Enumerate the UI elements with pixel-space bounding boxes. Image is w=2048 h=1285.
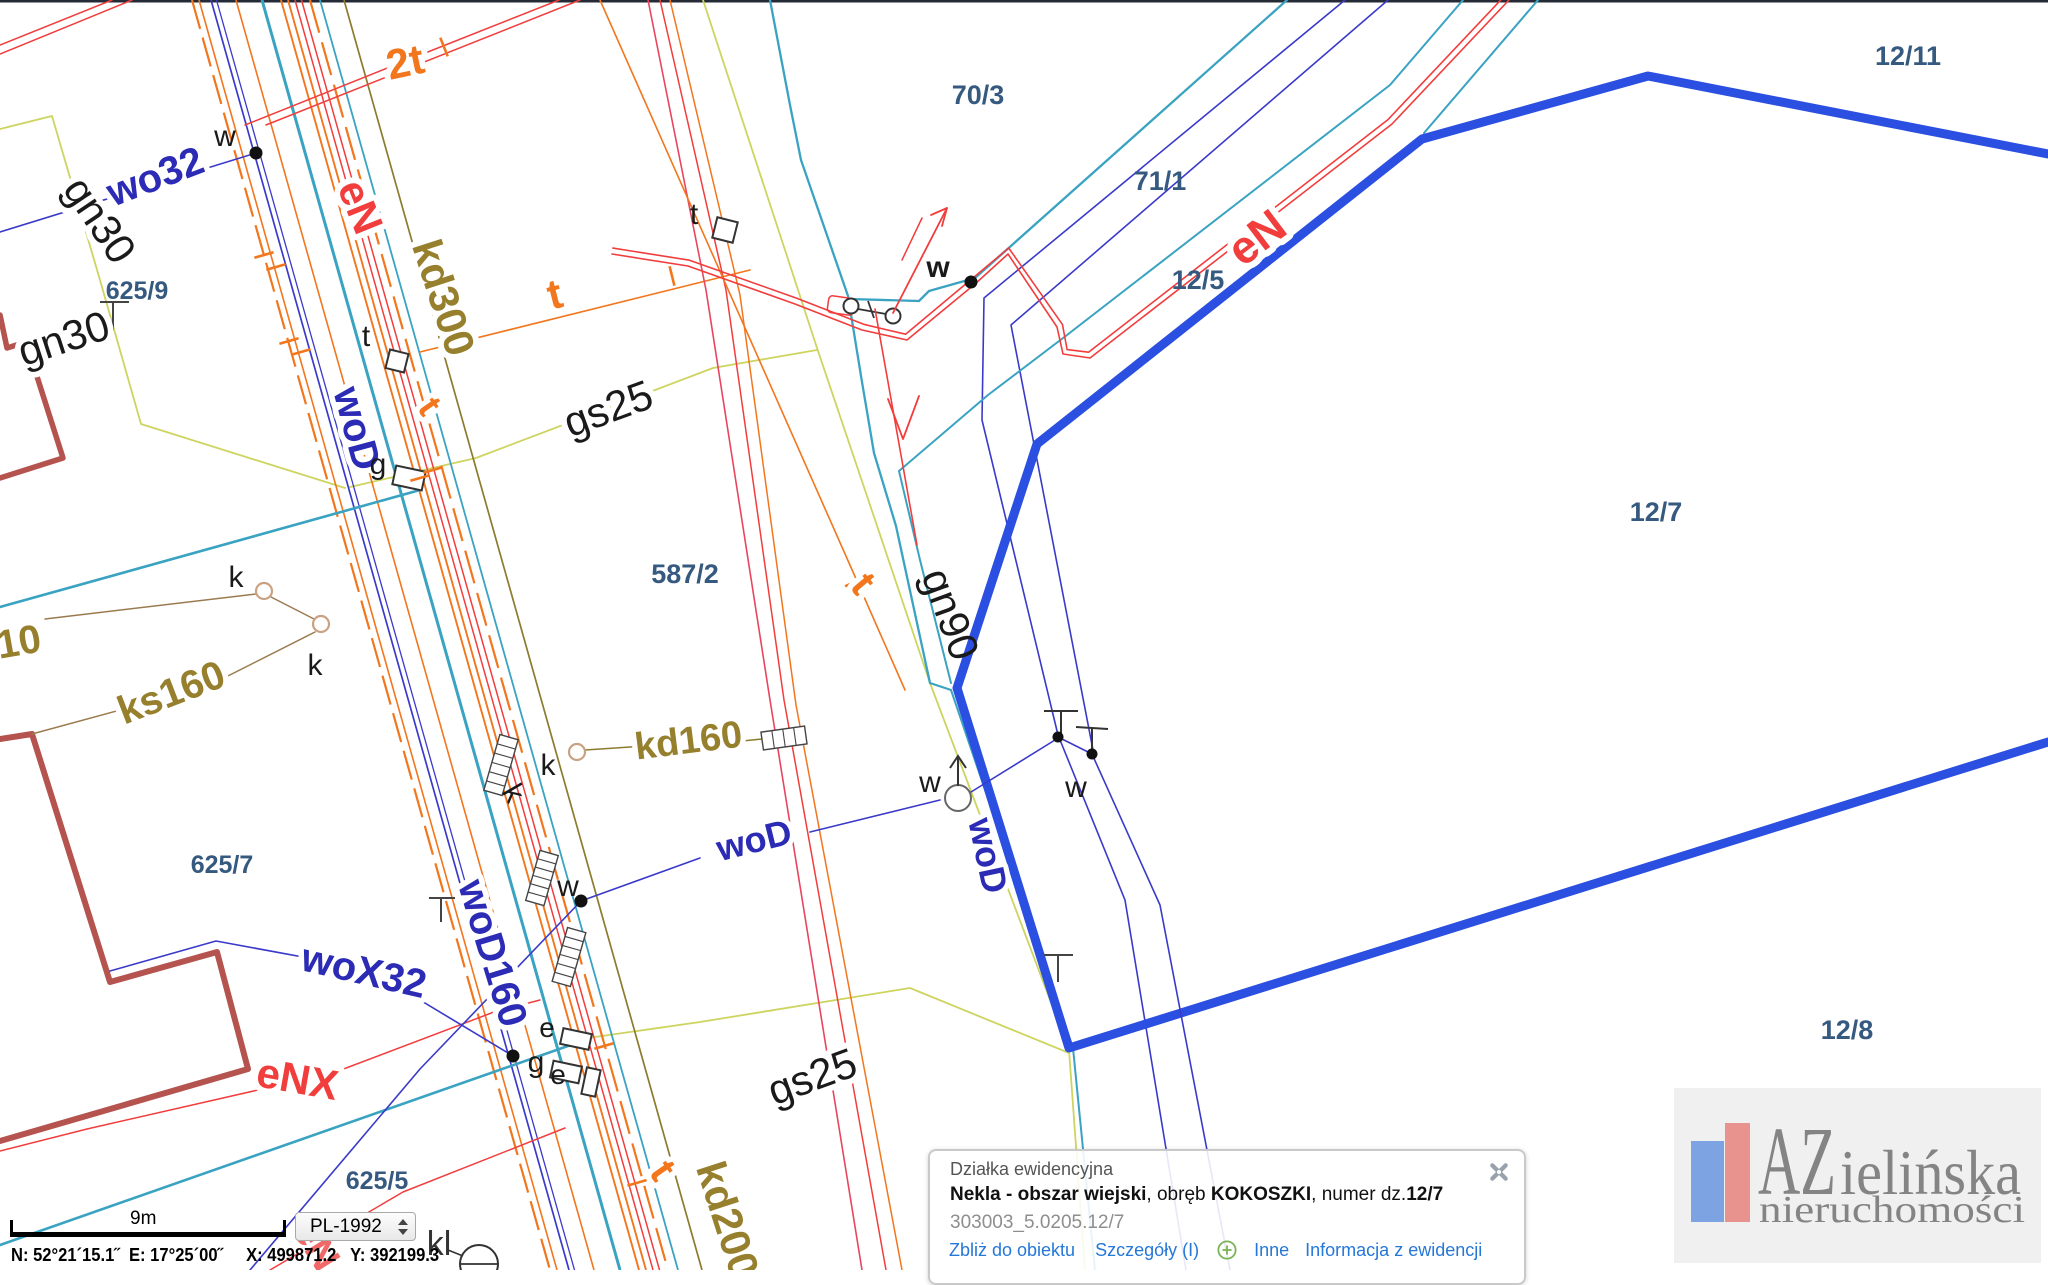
svg-text:12/8: 12/8 bbox=[1821, 1015, 1874, 1045]
svg-text:w: w bbox=[213, 120, 236, 153]
svg-text:w: w bbox=[556, 870, 579, 903]
svg-text:e: e bbox=[539, 1012, 555, 1043]
svg-text:625/7: 625/7 bbox=[191, 851, 254, 879]
svg-text:w: w bbox=[918, 766, 941, 799]
svg-text:12/7: 12/7 bbox=[1630, 497, 1683, 527]
svg-text:gn30: gn30 bbox=[12, 301, 115, 375]
svg-text:625/5: 625/5 bbox=[346, 1167, 409, 1195]
svg-text:12/5: 12/5 bbox=[1172, 265, 1225, 295]
svg-text:ks160: ks160 bbox=[112, 652, 232, 733]
svg-text:gs25: gs25 bbox=[557, 371, 659, 446]
svg-text:kd200: kd200 bbox=[687, 1156, 769, 1270]
svg-text:71/1: 71/1 bbox=[1134, 166, 1187, 196]
svg-text:gs25: gs25 bbox=[761, 1039, 863, 1114]
svg-text:kd300: kd300 bbox=[403, 234, 485, 362]
svg-text:woD160: woD160 bbox=[449, 874, 536, 1032]
svg-text:2t: 2t bbox=[382, 35, 428, 89]
svg-text:12/11: 12/11 bbox=[1875, 41, 1941, 71]
svg-text:woX32: woX32 bbox=[296, 935, 430, 1007]
svg-text:eNX: eNX bbox=[253, 1048, 342, 1108]
svg-text:k: k bbox=[541, 749, 557, 782]
svg-text:w: w bbox=[925, 251, 950, 284]
svg-text:70/3: 70/3 bbox=[952, 80, 1005, 110]
svg-text:t: t bbox=[362, 320, 371, 353]
svg-text:w: w bbox=[1064, 771, 1087, 804]
svg-text:kd160: kd160 bbox=[633, 714, 745, 769]
svg-text:g: g bbox=[370, 448, 387, 481]
svg-text:t: t bbox=[542, 269, 567, 318]
svg-text:woD: woD bbox=[711, 811, 796, 869]
svg-text:t: t bbox=[690, 198, 699, 231]
svg-text:woD: woD bbox=[960, 813, 1016, 897]
svg-text:10: 10 bbox=[0, 617, 44, 668]
svg-text:nieruchomości: nieruchomości bbox=[1759, 1189, 2025, 1231]
svg-text:625/9: 625/9 bbox=[106, 277, 169, 305]
svg-text:eN: eN bbox=[329, 173, 393, 240]
svg-text:587/2: 587/2 bbox=[651, 559, 719, 589]
svg-text:k: k bbox=[229, 561, 245, 594]
svg-text:k: k bbox=[308, 649, 324, 682]
svg-text:e: e bbox=[550, 1059, 566, 1090]
svg-text:g: g bbox=[528, 1046, 545, 1079]
